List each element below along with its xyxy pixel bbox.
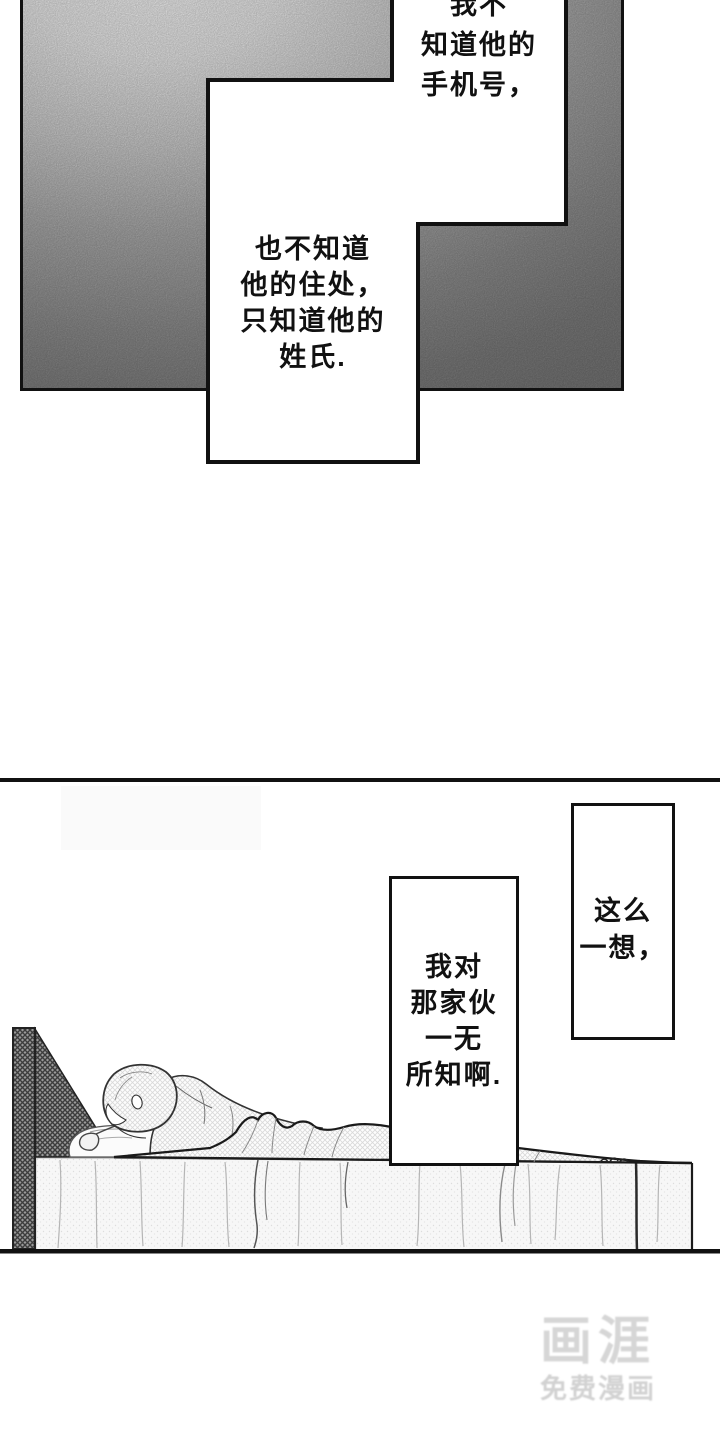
brand-logo: 画涯 [508, 1312, 688, 1372]
site-watermark: 画涯 免费漫画 [508, 1312, 688, 1404]
manga-page: 我不 知道他的 手机号， 也不知道 他的住处， 只知道他的 姓氏. [0, 0, 720, 1440]
bed-skirt [36, 1158, 692, 1250]
bed-illustration [0, 1020, 720, 1260]
speech-text-phone: 我不 知道他的 手机号， [392, 0, 566, 105]
brand-tagline: 免费漫画 [508, 1374, 688, 1404]
blanket-crease [636, 1163, 637, 1250]
panel-divider-line [0, 778, 720, 782]
speech-text-address: 也不知道 他的住处， 只知道他的 姓氏. [208, 231, 418, 375]
hand [80, 1133, 99, 1150]
faint-background-block [61, 786, 261, 850]
speech-text-know: 我对 那家伙 一无 所知啊. [389, 949, 519, 1093]
bed-base-line [0, 1249, 720, 1254]
speech-text-think: 这么 一想， [571, 893, 675, 967]
